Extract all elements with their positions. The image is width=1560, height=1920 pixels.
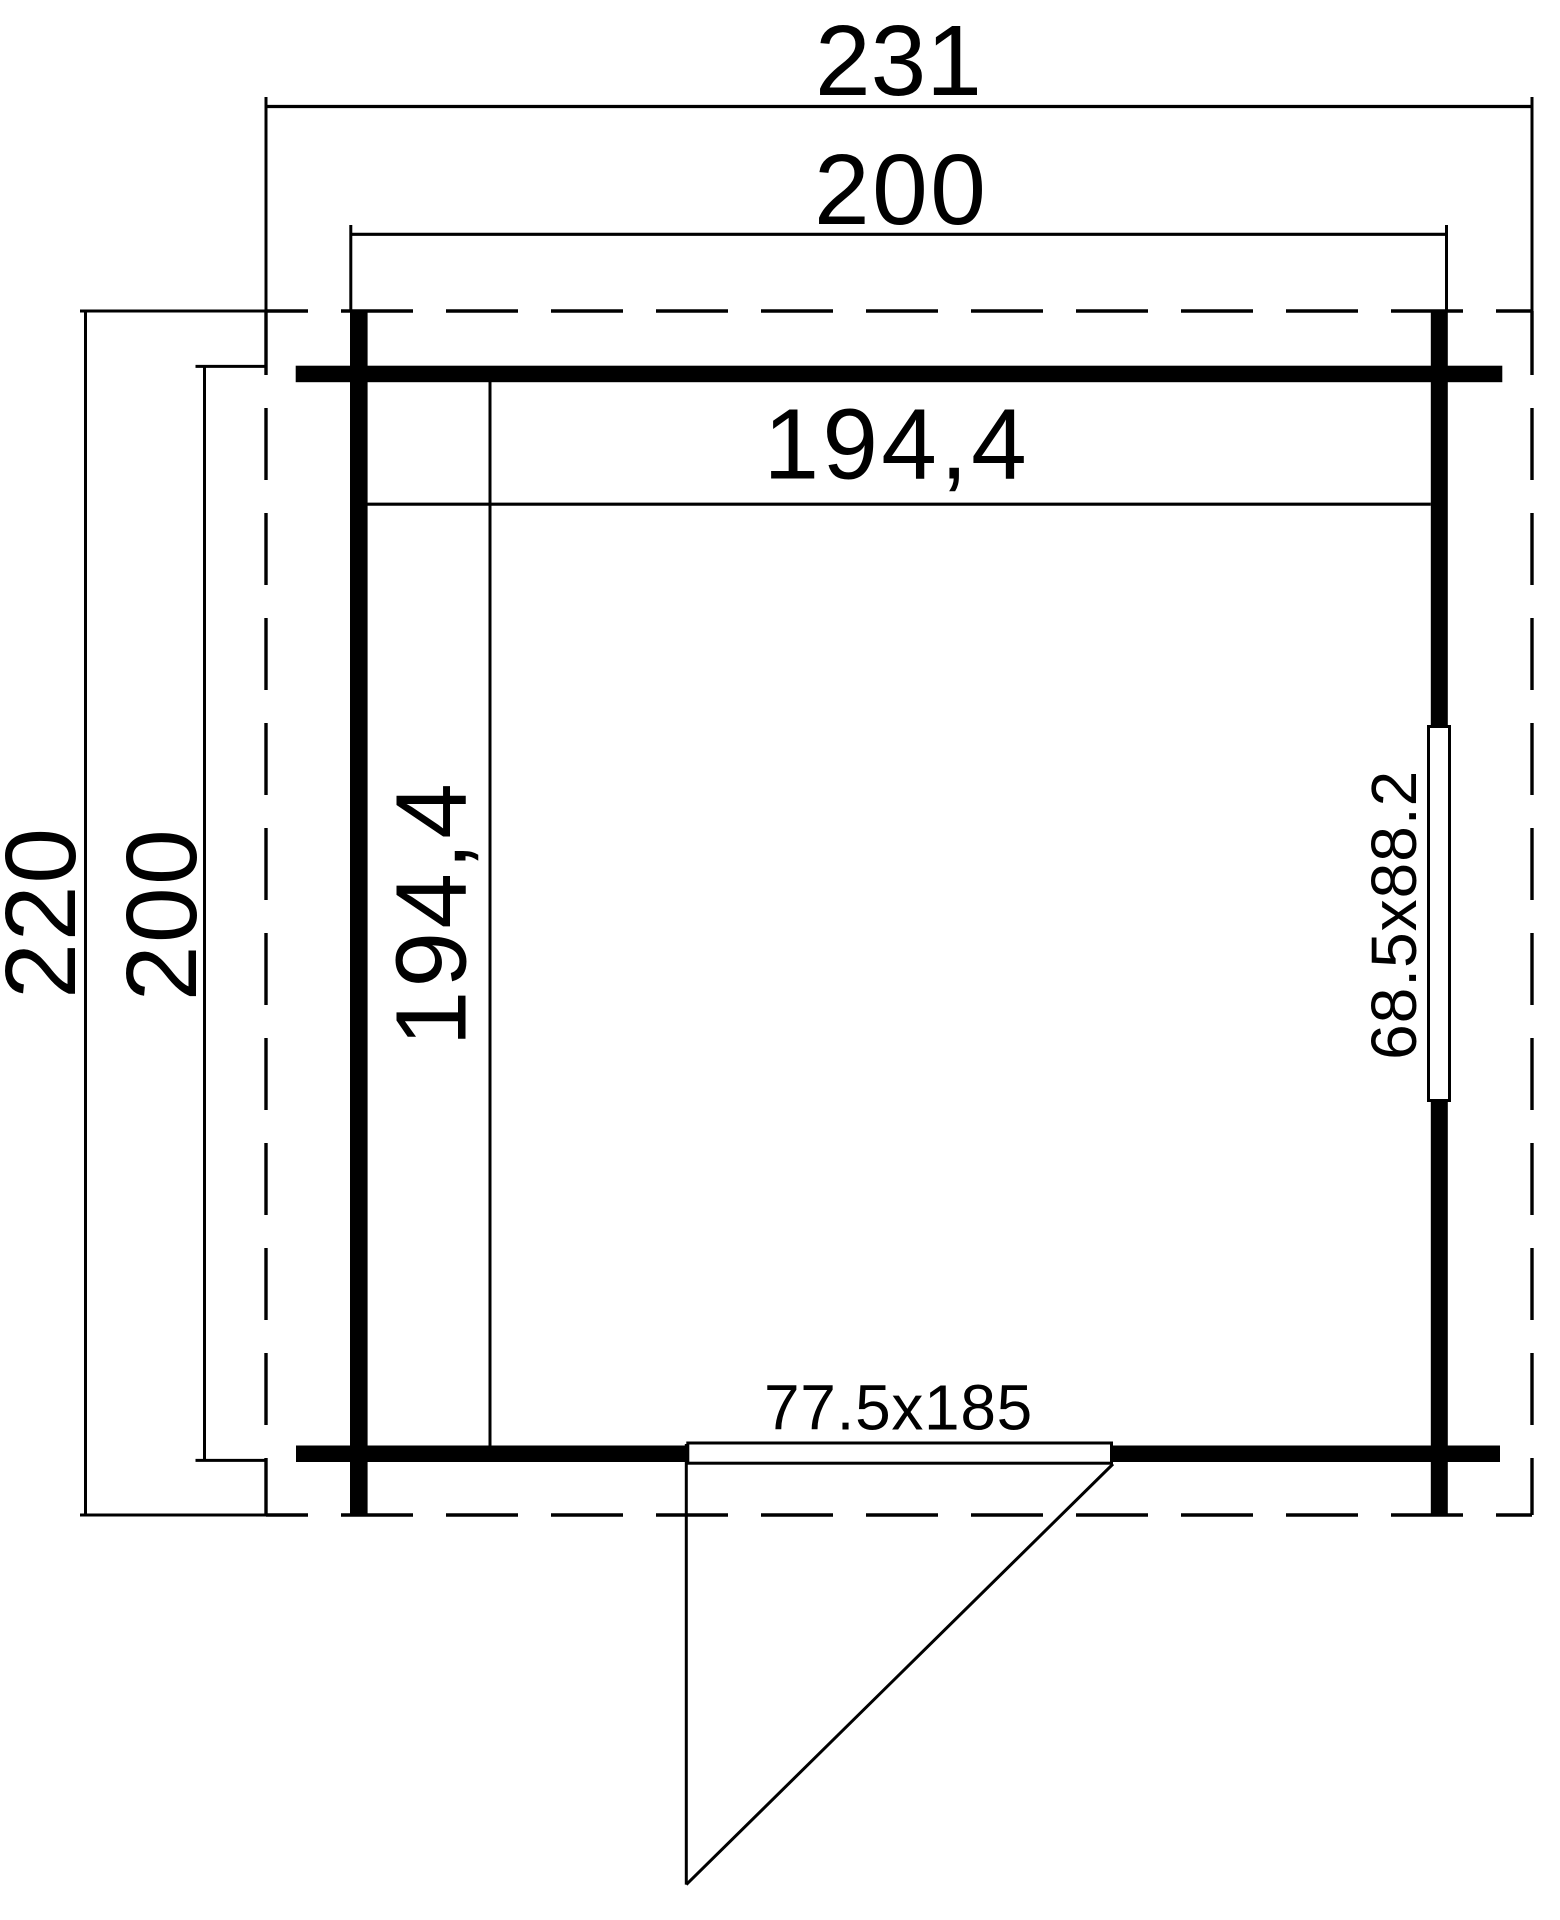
- svg-text:77.5x185: 77.5x185: [764, 1372, 1033, 1444]
- svg-text:231: 231: [815, 5, 982, 117]
- svg-text:220: 220: [0, 826, 97, 999]
- svg-text:200: 200: [814, 134, 988, 246]
- svg-text:68.5x88.2: 68.5x88.2: [1358, 770, 1430, 1060]
- svg-text:194,4: 194,4: [375, 780, 487, 1047]
- svg-text:194,4: 194,4: [764, 389, 1031, 501]
- svg-text:200: 200: [106, 827, 218, 1001]
